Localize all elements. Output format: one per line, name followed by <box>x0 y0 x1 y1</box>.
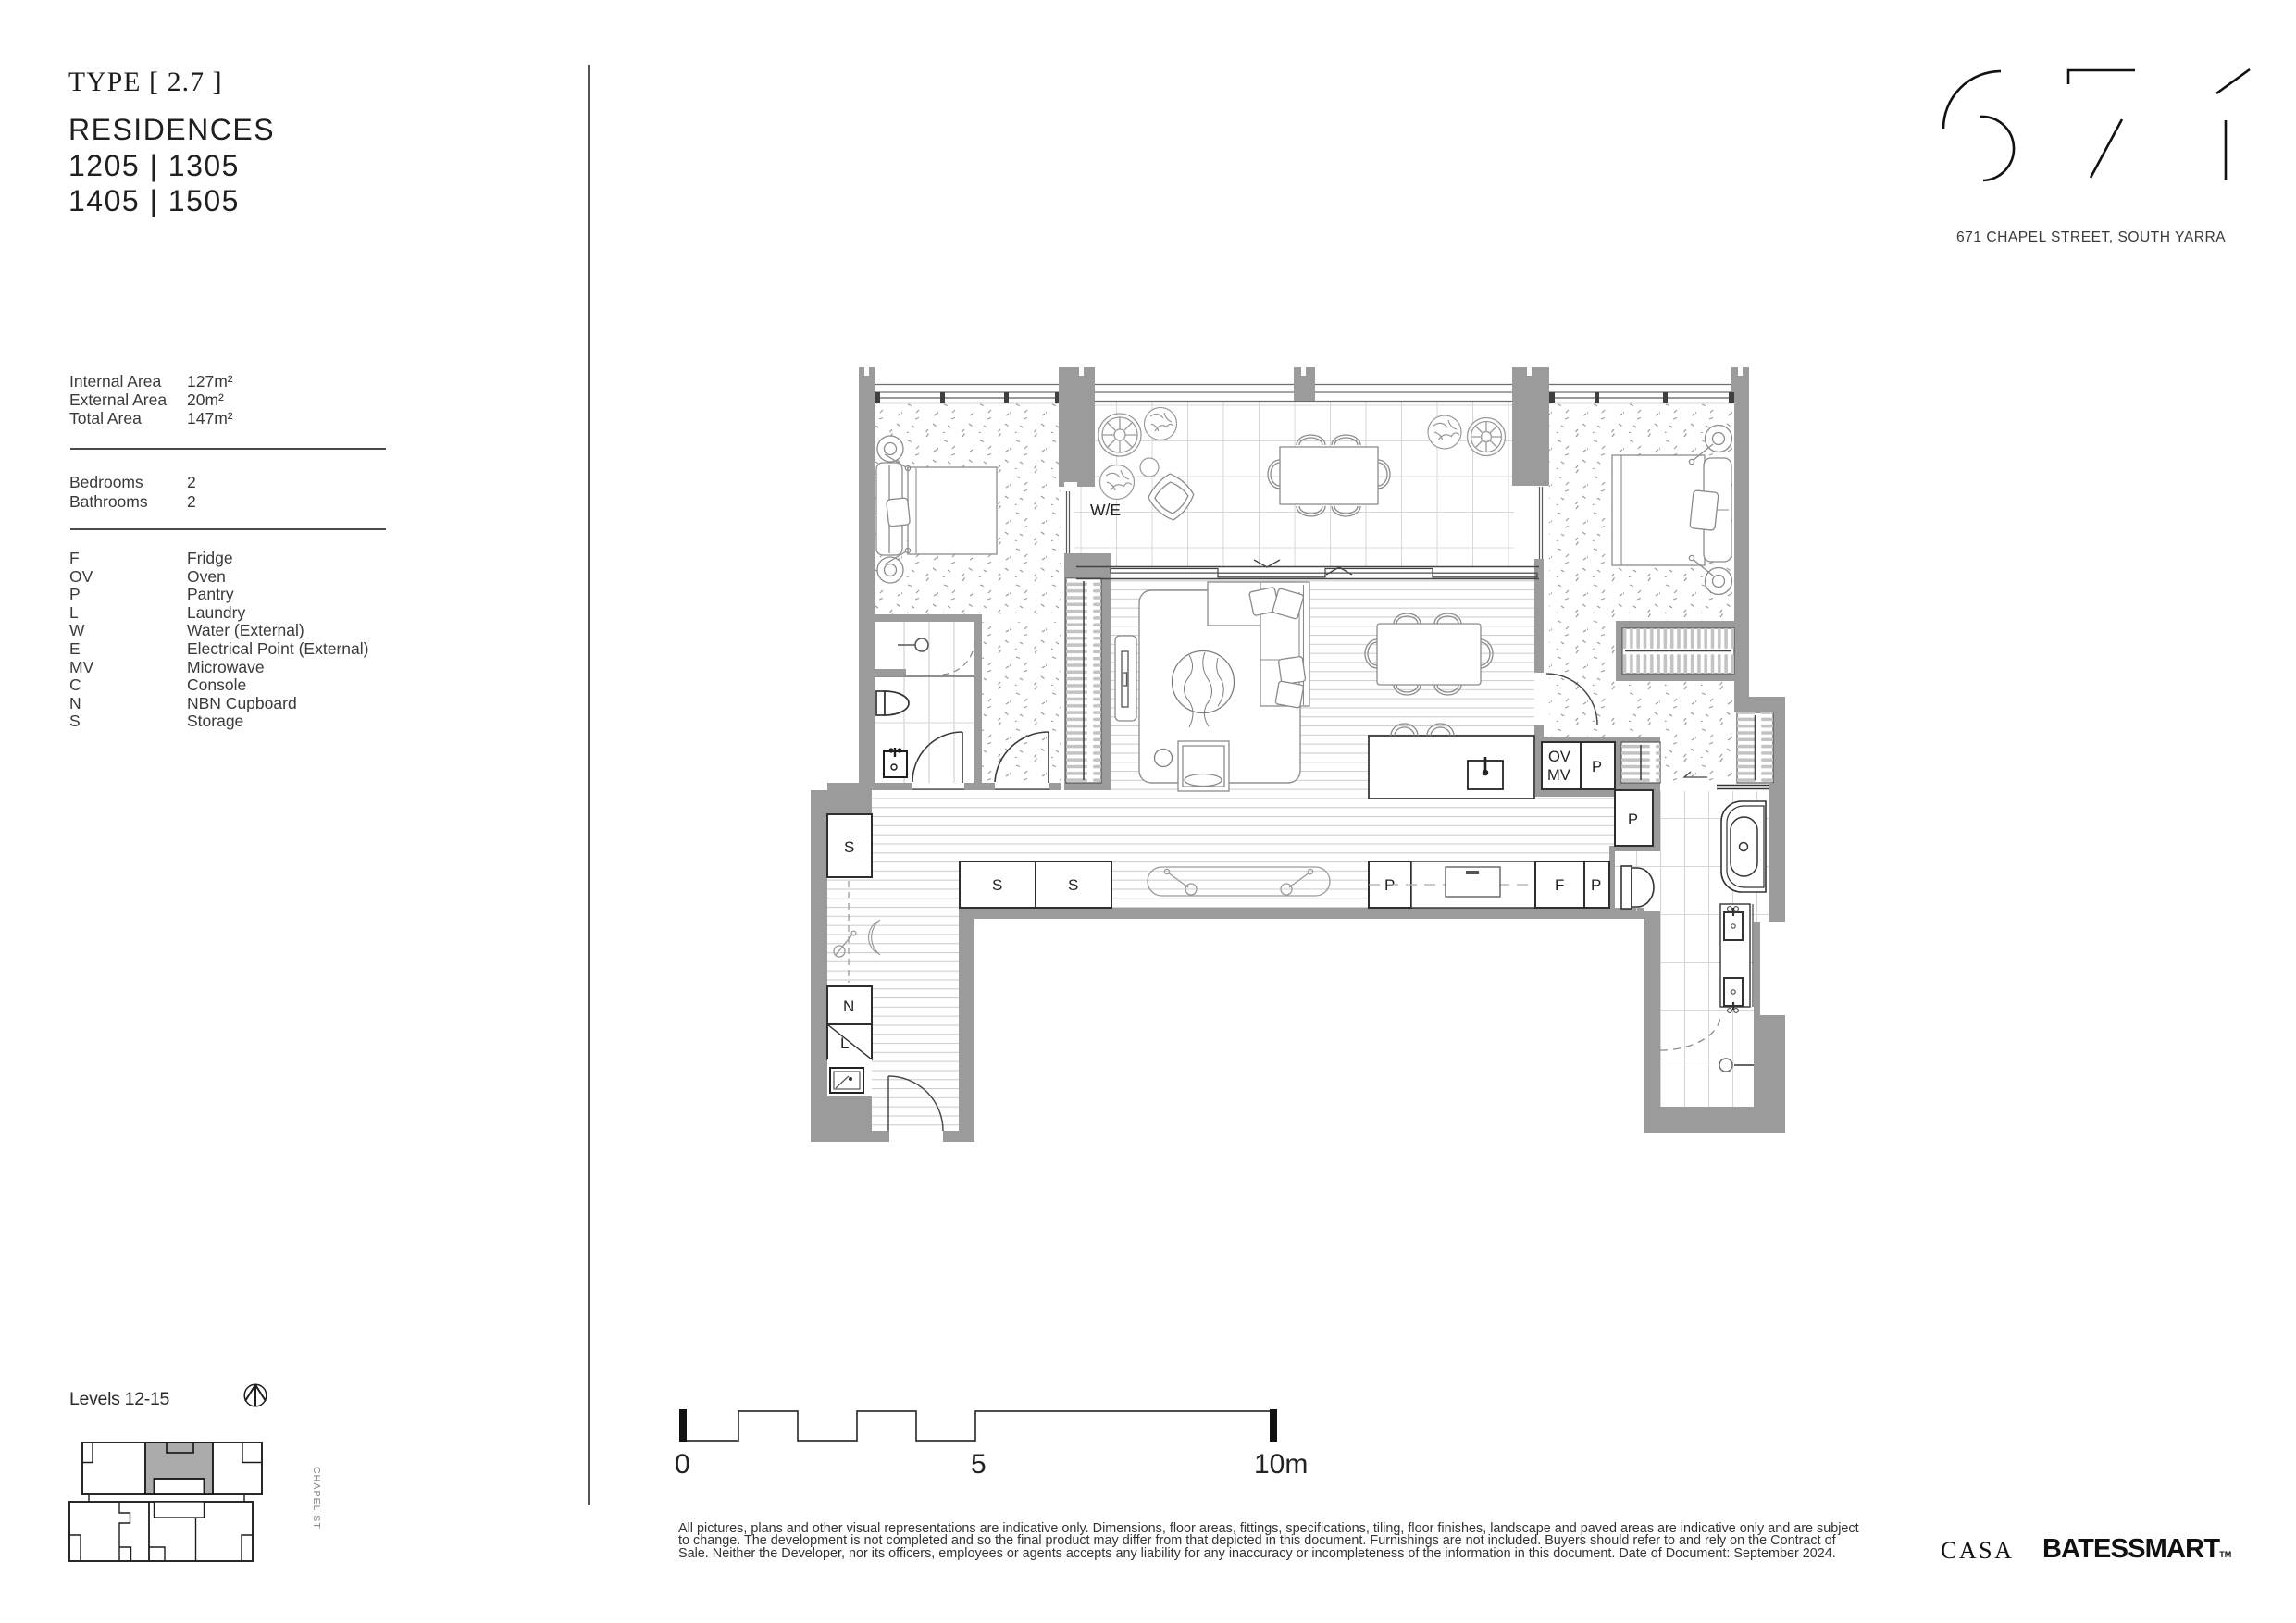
svg-text:L: L <box>840 1035 849 1052</box>
svg-text:S: S <box>844 838 854 856</box>
svg-text:P: P <box>1628 811 1638 828</box>
svg-text:5: 5 <box>971 1449 987 1480</box>
svg-text:10m: 10m <box>1254 1449 1308 1480</box>
svg-text:S: S <box>1068 876 1078 894</box>
svg-text:MV: MV <box>1547 767 1570 784</box>
svg-text:W/E: W/E <box>1090 501 1121 519</box>
svg-text:CHAPEL ST: CHAPEL ST <box>311 1467 322 1530</box>
svg-text:P: P <box>1592 759 1602 775</box>
svg-text:P: P <box>1591 876 1601 894</box>
svg-text:OV: OV <box>1548 749 1570 765</box>
svg-text:0: 0 <box>675 1449 690 1480</box>
svg-text:N: N <box>843 997 854 1015</box>
svg-text:F: F <box>1555 876 1564 894</box>
svg-text:S: S <box>992 876 1002 894</box>
